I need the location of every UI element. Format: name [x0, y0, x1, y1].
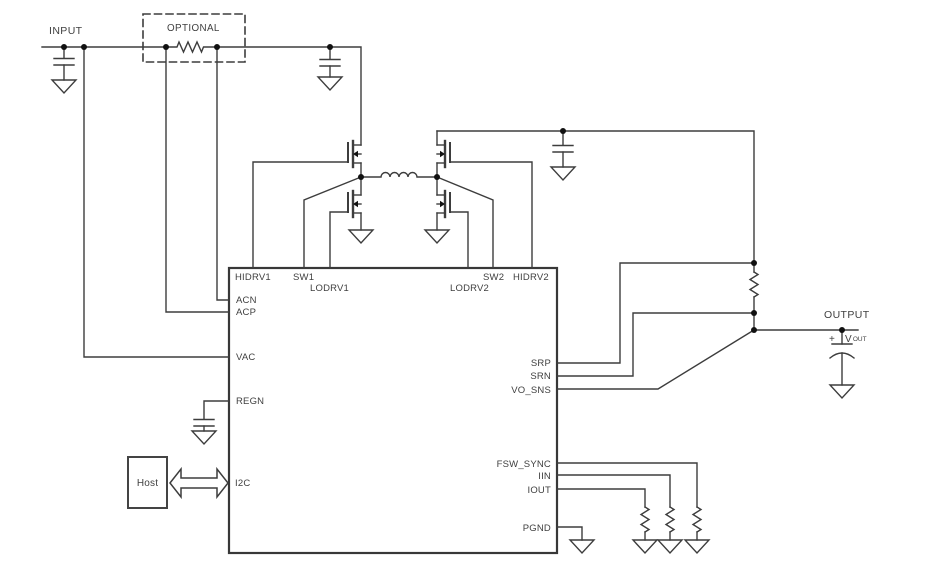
pin-label-hidrv1: HIDRV1 — [235, 272, 271, 283]
pin-label-lodrv2: LODRV2 — [450, 283, 489, 294]
pin-label-iin: IIN — [538, 471, 551, 482]
pin-label-regn: REGN — [236, 396, 264, 407]
schematic-canvas: INPUT OPTIONAL OUTPUT + VOUT Host HIDRV1… — [0, 0, 926, 582]
srn-wire — [557, 313, 754, 376]
ground-icon — [685, 540, 709, 553]
pin-label-sw1: SW1 — [293, 272, 314, 283]
hidrv2-gate-wire — [450, 162, 532, 268]
ground-icon — [425, 230, 449, 243]
inductor-icon — [361, 173, 437, 178]
pin-label-vac: VAC — [236, 352, 255, 363]
output-hf-capacitor-icon — [551, 131, 575, 180]
hidrv1-gate-wire — [253, 162, 348, 268]
acp-wire — [166, 47, 229, 312]
optional-box — [143, 14, 245, 62]
lodrv1-gate-wire — [330, 212, 348, 268]
vac-wire — [84, 47, 229, 357]
output-label: OUTPUT — [824, 310, 870, 321]
bypass-capacitor-icon — [318, 47, 342, 90]
vout-plus-label: + — [829, 334, 835, 345]
ground-icon — [830, 385, 854, 398]
pin-label-pgnd: PGND — [523, 523, 551, 534]
ground-icon — [52, 80, 76, 93]
ic-body — [229, 268, 557, 553]
ground-icon — [349, 230, 373, 243]
i2c-arrow-icon — [170, 469, 228, 497]
ground-icon — [570, 540, 594, 553]
pin-label-fsw-sync: FSW_SYNC — [497, 459, 551, 470]
iin-resistor-icon — [557, 475, 682, 553]
mosfet-q4-icon — [425, 177, 468, 268]
pin-label-sw2: SW2 — [483, 272, 504, 283]
pin-label-hidrv2: HIDRV2 — [513, 272, 549, 283]
ground-icon — [658, 540, 682, 553]
ground-icon — [192, 431, 216, 444]
pin-label-vo-sns: VO_SNS — [511, 385, 551, 396]
regn-capacitor-icon — [192, 401, 229, 444]
optional-label: OPTIONAL — [167, 23, 220, 34]
acn-wire — [217, 47, 229, 300]
pin-label-i2c: I2C — [235, 478, 250, 489]
input-capacitor-icon — [52, 47, 76, 93]
pin-label-srn: SRN — [530, 371, 551, 382]
lodrv2-gate-wire — [450, 212, 468, 268]
mosfet-q2-icon — [330, 177, 373, 268]
ground-icon — [551, 167, 575, 180]
vo-sns-wire — [557, 330, 754, 389]
pgnd-wire — [557, 527, 594, 553]
pin-label-acn: ACN — [236, 295, 257, 306]
ground-icon — [633, 540, 657, 553]
input-label: INPUT — [49, 26, 83, 37]
output-sense-resistor-icon — [750, 263, 758, 330]
pin-label-acp: ACP — [236, 307, 256, 318]
ground-icon — [318, 77, 342, 90]
input-rail-wire — [42, 42, 361, 145]
pin-label-lodrv1: LODRV1 — [310, 283, 349, 294]
vout-label: VOUT — [845, 334, 867, 345]
mosfet-q3-icon — [437, 131, 532, 268]
host-label: Host — [128, 478, 167, 489]
pin-label-srp: SRP — [531, 358, 551, 369]
iout-resistor-icon — [557, 489, 657, 553]
pin-label-iout: IOUT — [528, 485, 552, 496]
mosfet-q1-icon — [253, 141, 361, 268]
